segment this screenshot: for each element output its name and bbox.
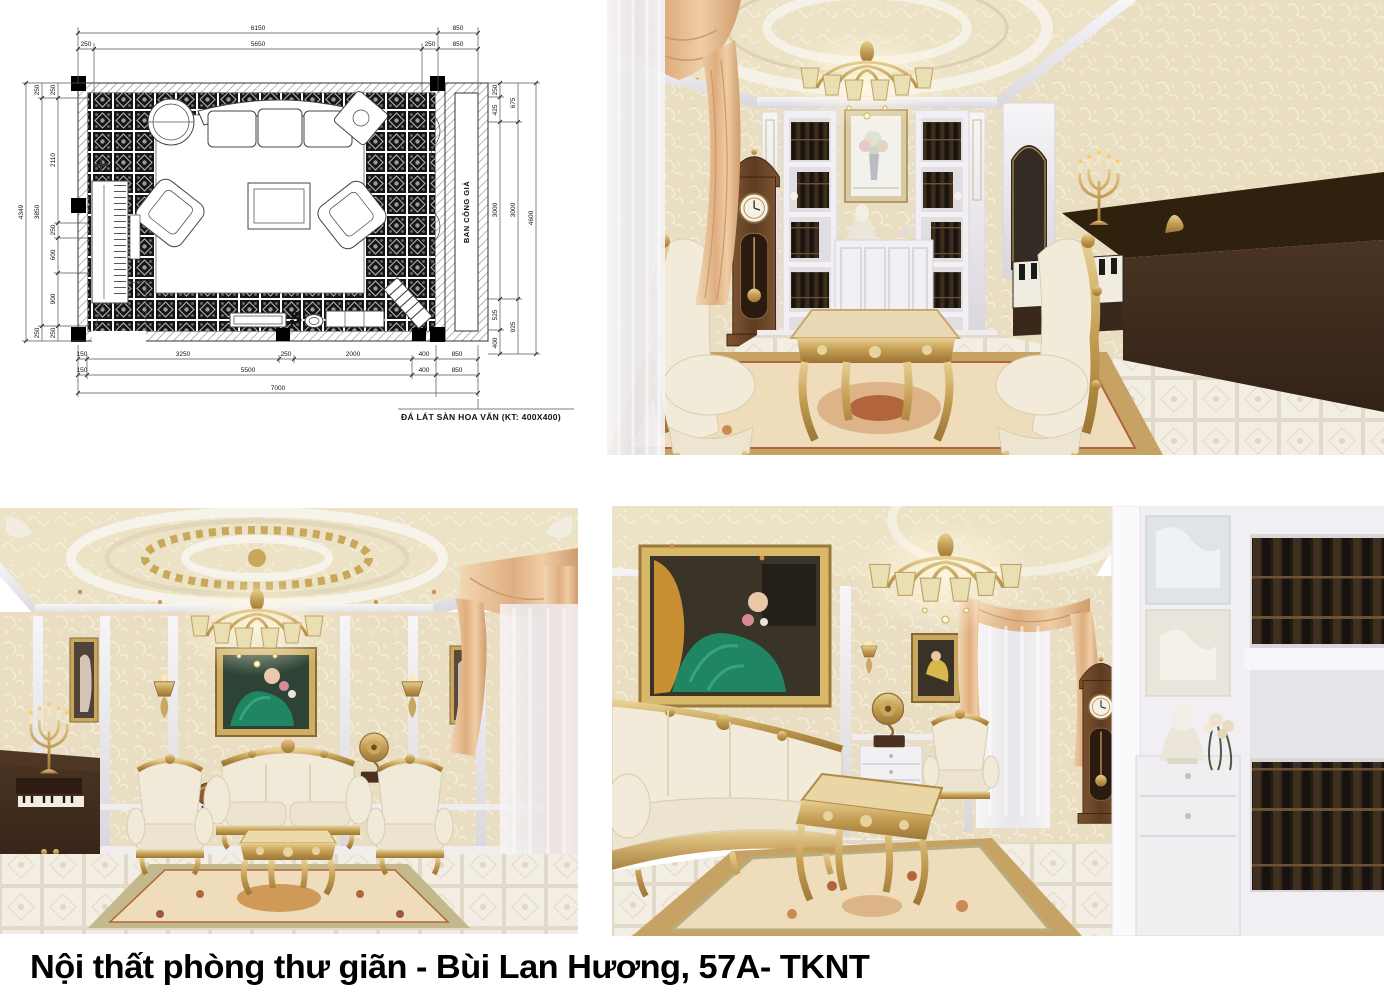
svg-text:900: 900 <box>50 293 57 304</box>
svg-text:7000: 7000 <box>271 385 286 392</box>
svg-text:250: 250 <box>50 327 57 338</box>
svg-text:2110: 2110 <box>50 153 57 167</box>
svg-text:3850: 3850 <box>34 204 41 219</box>
render-wide-view <box>0 508 578 934</box>
armchair-left <box>127 754 213 874</box>
svg-text:400: 400 <box>419 351 430 358</box>
svg-text:150: 150 <box>77 367 88 374</box>
render-side-view <box>612 506 1384 936</box>
balcony: BAN CÔNG GIẢ <box>462 181 471 243</box>
bookshelf-unit <box>1112 506 1384 936</box>
floor-material-note: ĐÁ LÁT SÀN HOA VĂN (KT: 400X400) <box>398 399 574 422</box>
svg-text:250: 250 <box>492 84 499 95</box>
large-painting <box>640 546 830 706</box>
bookcase-left <box>783 110 837 340</box>
svg-text:250: 250 <box>425 41 436 48</box>
svg-text:2000: 2000 <box>346 351 361 358</box>
armchair-right <box>367 754 453 874</box>
svg-text:850: 850 <box>452 351 463 358</box>
ceiling-spotlight <box>760 556 765 561</box>
svg-text:425: 425 <box>492 104 499 115</box>
svg-text:250: 250 <box>50 84 57 95</box>
svg-text:3000: 3000 <box>492 202 499 217</box>
svg-text:850: 850 <box>452 367 463 374</box>
svg-text:250: 250 <box>34 84 41 95</box>
svg-text:250: 250 <box>50 224 57 235</box>
svg-text:6150: 6150 <box>251 25 266 32</box>
small-painting <box>912 634 960 702</box>
floor-plan-drawing: BAN CÔNG GIẢ W740 <box>8 5 583 441</box>
svg-text:150: 150 <box>77 351 88 358</box>
svg-text:250: 250 <box>81 41 92 48</box>
svg-text:BAN CÔNG GIẢ: BAN CÔNG GIẢ <box>462 181 471 243</box>
plan-coffee-table <box>248 183 310 229</box>
plan-round-table <box>148 99 194 145</box>
svg-text:ĐÁ LÁT SÀN HOA VĂN (KT: 400X40: ĐÁ LÁT SÀN HOA VĂN (KT: 400X400) <box>401 412 561 422</box>
portrait-painting-left <box>70 638 98 722</box>
svg-text:675: 675 <box>510 97 517 108</box>
svg-text:525: 525 <box>492 309 499 320</box>
svg-text:400: 400 <box>419 367 430 374</box>
svg-text:3250: 3250 <box>176 351 191 358</box>
svg-text:850: 850 <box>453 25 464 32</box>
project-caption: Nội thất phòng thư giãn - Bùi Lan Hương,… <box>30 948 869 986</box>
svg-text:5500: 5500 <box>241 367 256 374</box>
sheer-curtain <box>607 0 665 455</box>
svg-text:4600: 4600 <box>528 210 535 225</box>
render-front-view <box>607 0 1384 455</box>
svg-text:5650: 5650 <box>251 41 266 48</box>
pilaster-right <box>969 112 985 338</box>
svg-text:4349: 4349 <box>18 204 25 219</box>
svg-text:925: 925 <box>510 321 517 332</box>
svg-text:600: 600 <box>50 249 57 260</box>
svg-text:850: 850 <box>453 41 464 48</box>
svg-text:3000: 3000 <box>510 202 517 217</box>
svg-text:250: 250 <box>34 327 41 338</box>
svg-text:400: 400 <box>492 337 499 348</box>
svg-text:250: 250 <box>281 351 292 358</box>
ceiling-spotlight <box>670 544 675 549</box>
